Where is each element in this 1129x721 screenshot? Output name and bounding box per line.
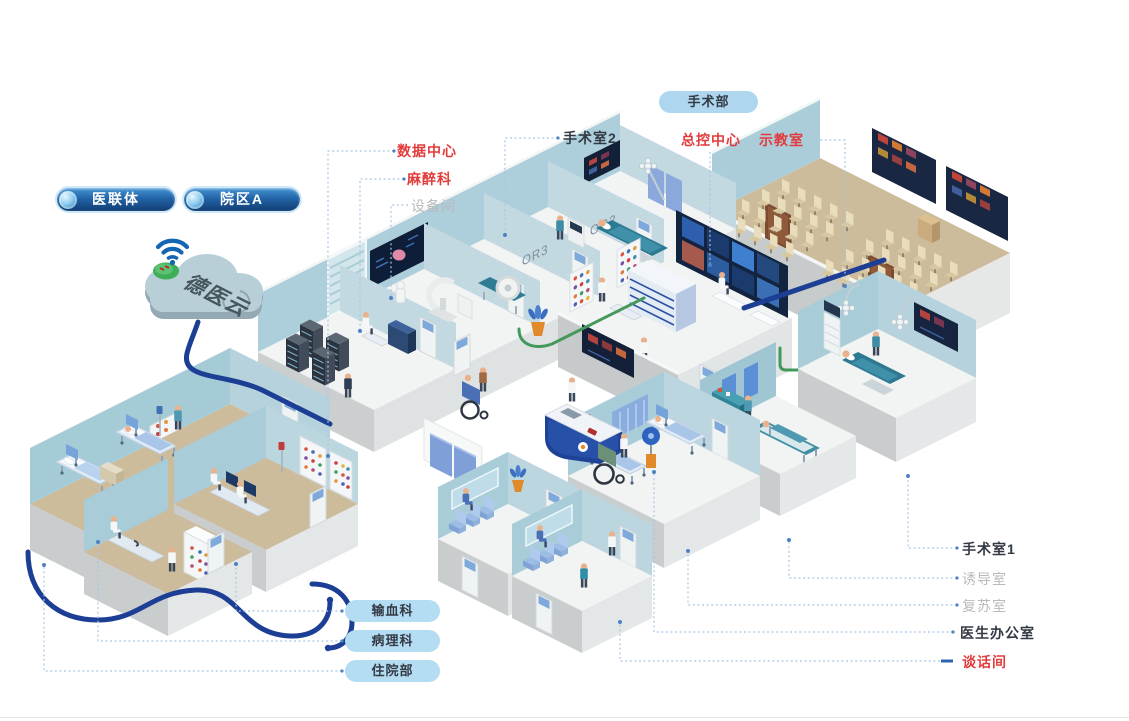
label-operating-room-2: 手术室2 [563, 131, 617, 145]
pill-inpatient: 住院部 [345, 660, 440, 682]
label-master-control: 总控中心 [681, 133, 741, 147]
badge-medical-alliance: 医联体 [57, 188, 175, 211]
label-operating-room-1: 手术室1 [962, 542, 1016, 556]
badge-campus-a: 院区A [184, 188, 300, 211]
pill-pathology: 病理科 [345, 630, 440, 652]
cloud-logo-badge [153, 263, 179, 280]
label-demo-classroom: 示教室 [759, 133, 804, 147]
wifi-icon [158, 241, 187, 265]
label-anesthesiology: 麻醉科 [407, 172, 452, 186]
badge-surgery-dept: 手术部 [659, 91, 758, 113]
page-bottom-divider [0, 717, 1129, 718]
label-recovery-room: 复苏室 [962, 599, 1007, 613]
label-equipment-room: 设备间 [411, 199, 456, 213]
label-talk-room: 谈话间 [962, 655, 1007, 669]
pill-blood-transfusion: 输血科 [345, 600, 440, 622]
label-induction-room: 诱导室 [962, 572, 1007, 586]
label-doctor-office: 医生办公室 [960, 626, 1035, 640]
hospital-isometric-diagram: OR3 OR2 [0, 0, 1129, 721]
isometric-scene: OR3 OR2 [0, 0, 1129, 721]
or1-equipment-tower [824, 300, 840, 356]
cloud-icon: 德医云 [145, 254, 263, 321]
label-data-center: 数据中心 [397, 144, 457, 158]
